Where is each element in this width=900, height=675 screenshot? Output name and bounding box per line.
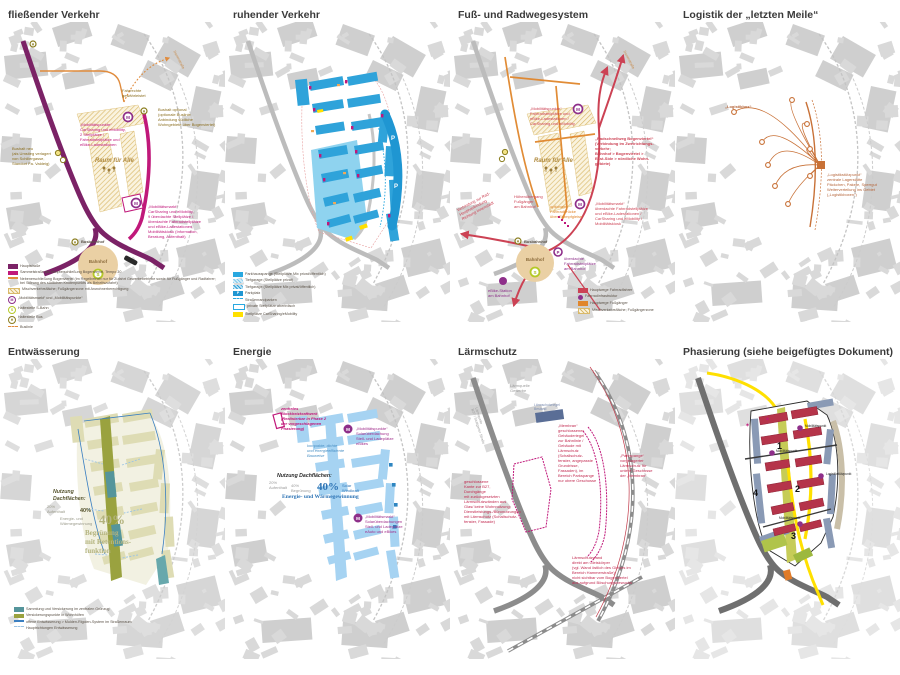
legend-item: Hauptwege Fahrradfahrer [578, 288, 672, 293]
text-energie-waerme: Energie- und Wärmegewinnung [282, 494, 392, 501]
legend-item: Straßenrandparken [233, 298, 445, 302]
panel-phasierung: Phasierung (siehe beigefügtes Dokument) [675, 337, 900, 674]
bus-stop-icon: H [30, 41, 36, 47]
legend-item: M „Mobilitätsmarkt“ und „Mobilitätspunkt… [8, 296, 220, 304]
busbahnhof-icon: H [515, 238, 521, 244]
mobilitaetspunkt-icon: M [344, 425, 353, 434]
annotation-raum-fuer-alle: Raum für Alle [534, 158, 584, 166]
annotation-mobilitaetspunkte: „Mobilitätspunkte“ CarSharing und eMobil… [80, 122, 128, 147]
legend-label: Sammelstraße als Haupterschließung Bogen… [20, 270, 121, 274]
annotation-mobilitaetsmarkt: „Mobilitätsmarkt“ überdachte Fahrradstel… [595, 201, 655, 226]
legend-label: Haltestelle S-Bahn [18, 306, 49, 310]
legend-swatch-icon [8, 277, 18, 279]
legend-swatch-icon [233, 298, 243, 299]
legend-label: Tiefgarage (Stellplätze privat) [245, 278, 293, 282]
legend: Sammlung und Versickerung im zentralen G… [14, 607, 214, 632]
legend-item: Tiefgarage (Stellplätze Mix privat/öffen… [233, 285, 445, 290]
map-canvas: ✶ ✶ 1 2 3 4 Mobilitätspunkt Mobilitätspu… [675, 359, 900, 659]
bus-stop-icon [60, 157, 65, 162]
legend-item: S Haltestelle S-Bahn [8, 306, 220, 314]
panel-title: ruhender Verkehr [225, 0, 450, 22]
legend-item: Mischverkehrsfläche; Fußgängerzone [578, 308, 672, 315]
legend-item: Nebenerschließung Bogenviertel (im Regel… [8, 277, 220, 286]
legend-swatch-icon [233, 304, 245, 311]
legend-item: H Haltestelle Bus [8, 315, 220, 323]
logistik-routes [734, 100, 820, 204]
map-laermschutz: Lärmquelle Gewerbe Lärmschutzriegel Best… [450, 359, 675, 659]
planning-sheet: fließender Verkehr Bahnhof S H [0, 0, 900, 675]
annotation-mobilitaetsmarkt: „Mobilitätsmarkt“ Solarüberdachungen Ste… [365, 514, 415, 534]
legend-item: Hauptrichtungen Entwässerung [14, 626, 214, 630]
map-entwaesserung: Nutzung Dachflächen: 20% Aufenthalt 40% … [0, 359, 225, 659]
text-40-begruenung: 40% Begrünung [291, 483, 317, 493]
panel-laermschutz: Lärmschutz Lärmquelle Ge [450, 337, 675, 674]
legend-label: Straßenrandparken [245, 298, 277, 302]
map-fuss-und-radwegesystem: Bahnhof S M M H [450, 22, 675, 322]
annotation-logistikstuetzpunkt: „Logistikstützpunkt“ zentrale Lagerstätt… [827, 172, 885, 197]
legend-label: offene Entwässerung > Mulden-Rigolen-Sys… [26, 620, 132, 624]
legend-swatch-icon [578, 288, 588, 293]
annotation-laermquelle-gewerbe: Lärmquelle Gewerbe [510, 383, 544, 393]
text-40-big: 40% [99, 512, 145, 528]
legend-swatch-icon [578, 295, 583, 300]
legend-label: Mischverkehrsfläche; Fußgängerzone mit A… [22, 287, 128, 291]
legend-swatch-icon [8, 264, 18, 269]
annotation-fahrradstellplaetze: überdachte Fahrradstellplätze am Bahnhof [564, 256, 608, 271]
legend-item: Hauptstraße [8, 264, 220, 269]
svg-text:P: P [557, 250, 560, 255]
legend-label: Buslinie [20, 325, 33, 329]
legend-label: Hauptrichtungen Entwässerung [26, 626, 77, 630]
legend-label: Tiefgarage (Stellplätze Mix privat/öffen… [245, 285, 316, 289]
svg-text:M: M [134, 201, 138, 206]
annotation-logistikbox: „Logistikbox“ [725, 104, 765, 109]
annotation-laermschutzriegel: Lärmschutzriegel Bestand [534, 403, 570, 412]
mobilitaetspunkt-icon: M [124, 113, 133, 122]
legend-label: Haltestelle Bus [18, 315, 43, 319]
legend-swatch-icon: H [8, 316, 16, 324]
annotation-ebike-station: eBike-Station am Bahnhof [488, 288, 526, 298]
annotation-raum-fuer-alle: Raum für Alle [95, 158, 145, 166]
legend-swatch-icon [233, 285, 243, 290]
annotation-fahrrechte: Fahrrechte gewährleistet [122, 88, 162, 98]
mobilitaetsmarkt-icon: M [354, 514, 363, 523]
legend-label: Parkhausspange (Stellplätze Mix privat/ö… [245, 272, 326, 276]
panel-title: fließender Verkehr [0, 0, 225, 22]
bus-stop-icon [502, 149, 507, 154]
poi-label: Mobilitätspunkt [805, 424, 826, 428]
text-nutzung-dachflaechen: Nutzung Dachflächen: [277, 473, 347, 480]
legend-label: Versickerungspunkte in Wohnhöfen [26, 613, 84, 617]
annotation-fahrradbruecke: optionale Fahrradbrücke über Stumpfgleis… [550, 204, 584, 219]
legend-label: Hauptstraße [20, 264, 40, 268]
poi-label: Mobilitätspunkt [776, 449, 797, 453]
annotation-kompakte-bauweise: kompakte, dichte und energieeffiziente B… [307, 443, 353, 458]
annotation-radschnellweg: „Radschnellweg Bogenviertel“ (Verbindung… [595, 136, 661, 166]
parkplatz-letter: P [394, 184, 398, 190]
panel-title: Lärmschutz [450, 337, 675, 359]
map-phasierung: ✶ ✶ 1 2 3 4 Mobilitätspunkt Mobilitätspu… [675, 359, 900, 659]
map-canvas: M M [225, 359, 450, 659]
legend-swatch-icon [8, 288, 20, 295]
annotation-geschlossene-kante: geschlossene Kante zur B27, Durchgänge m… [464, 479, 522, 524]
annotation-parkspange: „Parkspange“ vorgelagerter Lärmschutz fü… [620, 453, 658, 478]
text-40-small: 40% [80, 508, 96, 515]
legend-swatch-icon [233, 312, 243, 317]
panel-title: Phasierung (siehe beigefügtes Dokument) [675, 337, 900, 359]
legend-item: Fahrradinfrastruktur [578, 294, 672, 299]
legend-label: „Mobilitätsmarkt“ und „Mobilitätspunkte“ [18, 296, 83, 300]
bahnhof-label: Bahnhof [526, 257, 545, 262]
panel-grid: fließender Verkehr Bahnhof S H [0, 0, 900, 674]
legend-label: Parkplatz [245, 291, 260, 295]
text-energie-waerme: Energie- und Wärmegewinnung [60, 516, 98, 526]
parkplatz-letter: P [391, 136, 395, 142]
map-logistik: „Logistikbox“ „Logistikstützpunkt“ zentr… [675, 22, 900, 322]
legend-label: private Stellplätze oberirdisch [247, 304, 295, 308]
legend-swatch-icon [578, 308, 590, 315]
legend-swatch-icon [233, 272, 243, 277]
panel-title: Entwässerung [0, 337, 225, 359]
legend-item: offene Entwässerung > Mulden-Rigolen-Sys… [14, 620, 214, 624]
phase-number: 4 [753, 488, 758, 498]
legend-label: Sammlung und Versickerung im zentralen G… [26, 607, 109, 611]
legend-label: Nebenerschließung Bogenviertel (im Regel… [20, 277, 220, 286]
map-fliessender-verkehr: Bahnhof S H H M [0, 22, 225, 322]
phase-number: 3 [791, 531, 796, 541]
legend-item: Versickerungspunkte in Wohnhöfen [14, 613, 214, 618]
legend: Hauptstraße Sammelstraße als Haupterschl… [8, 264, 220, 331]
legend-item: Tiefgarage (Stellplätze privat) [233, 278, 445, 283]
legend-swatch-icon: S [8, 306, 16, 314]
poi-label: Logistikstützpunkt [826, 472, 851, 476]
legend-swatch-icon [14, 626, 24, 627]
legend-item: Mischverkehrsfläche; Fußgängerzone mit A… [8, 287, 220, 294]
legend-label: Hauptwege Fahrradfahrer [590, 288, 632, 292]
annotation-mobilitaetspunkte: „Mobilitätspunkte“ Solarüberdachung Stel… [356, 426, 406, 446]
legend-swatch-icon [8, 326, 18, 327]
logistikbox-icons [732, 98, 813, 207]
panel-entwaesserung: Entwässerung [0, 337, 225, 674]
star-icon: ✶ [745, 422, 750, 429]
legend-label: Stellplätze CarSharing/eMobility [245, 312, 297, 316]
annotation-mobilitaetspunkte: „Mobilitätspunkte“ Fahrradstellplätze un… [530, 106, 580, 126]
annotation-busbahnhof: Busbahnhof [81, 239, 115, 244]
bus-stop-icon: H [141, 108, 147, 114]
legend-swatch-icon: M [8, 296, 16, 304]
panel-ruhender-verkehr: ruhender Verkehr P P [225, 0, 450, 337]
legend-swatch-icon [14, 607, 24, 612]
star-icon: ✶ [765, 416, 770, 423]
annotation-bushalt-neu: Bushalt neu (als Umstieg verlagert von S… [12, 146, 58, 166]
mobilitaetsmarkt-icon: M [132, 199, 141, 208]
panel-title: Fuß- und Radwegesystem [450, 0, 675, 22]
legend-item: Buslinie [8, 325, 220, 329]
panel-title: Logistik der „letzten Meile“ [675, 0, 900, 22]
map-canvas: Bahnhof S M M H [450, 22, 675, 322]
panel-fuss-und-radwegesystem: Fuß- und Radwegesystem [450, 0, 675, 337]
text-solar-windkraft: Solar Windkraft [342, 483, 368, 493]
panel-logistik-letzte-meile: Logistik der „letzten Meile“ [675, 0, 900, 337]
fahrradparken-icon: P [554, 248, 562, 256]
annotation-hoehenuebergang: Höhenübergang Fußgänger am Bahnhof [514, 194, 550, 209]
sbahn-stop-icon: S [531, 268, 540, 277]
logistikstuetzpunkt-icon [817, 161, 825, 169]
bus-stop-icon [499, 156, 504, 161]
svg-text:M: M [356, 516, 360, 521]
legend-item: Hauptwege Fußgänger [578, 301, 672, 306]
text-20-aufenthalt: 20% Aufenthalt [47, 504, 77, 514]
legend-item: P Parkplatz [233, 291, 445, 296]
legend-label: Mischverkehrsfläche; Fußgängerzone [592, 308, 654, 312]
legend-item: Sammelstraße als Haupterschließung Bogen… [8, 270, 220, 275]
annotation-bhkw: zentrales Blockheizkraftwerk (Realisierb… [281, 406, 329, 431]
panel-energie: Energie M M zentrales [225, 337, 450, 674]
orange-building [783, 569, 792, 580]
panel-fliessender-verkehr: fließender Verkehr Bahnhof S H [0, 0, 225, 337]
poi-label: Mobilitätsmarkt [779, 516, 801, 520]
ebike-station-icon [499, 277, 507, 285]
legend: Hauptwege Fahrradfahrer Fahrradinfrastru… [578, 288, 672, 316]
annotation-laermschutzwand: Lärmschutzwand direkt am Gleiskörper (vg… [572, 555, 648, 585]
map-ruhender-verkehr: P P [225, 22, 450, 322]
legend-swatch-icon [578, 301, 588, 306]
legend-label: Hauptwege Fußgänger [590, 301, 628, 305]
annotation-membran: „Membran“ geschlossener Gebäuderiegel zu… [558, 423, 600, 483]
annotation-busbahnhof: Busbahnhof [524, 239, 558, 244]
legend-item: private Stellplätze oberirdisch [233, 304, 445, 311]
legend-swatch-icon: P [233, 291, 243, 296]
busbahnhof-icon: H [72, 239, 78, 245]
annotation-bushalt-optional: Bushalt optional (optionale Buslinie Anb… [158, 107, 216, 127]
text-nutzung-dachflaechen: Nutzung Dachflächen: [53, 489, 93, 502]
svg-text:M: M [346, 427, 350, 432]
legend-label: Fahrradinfrastruktur [585, 294, 617, 298]
legend-swatch-icon [14, 620, 24, 622]
legend-swatch-icon [14, 614, 24, 619]
annotation-mobilitaetsmarkt: „Mobilitätsmarkt“ CarSharing und eMobili… [148, 204, 210, 239]
text-begruenung: Begrünung mit Retentions- funktion [85, 529, 149, 555]
legend-swatch-icon [233, 279, 243, 284]
map-energie: M M zentrales Blockheizkraftwerk (Realis… [225, 359, 450, 659]
phase-number: 2 [795, 484, 800, 494]
legend-swatch-icon [8, 271, 18, 276]
legend-item: Parkhausspange (Stellplätze Mix privat/ö… [233, 272, 445, 277]
legend-item: Sammlung und Versickerung im zentralen G… [14, 607, 214, 612]
svg-text:S: S [533, 270, 536, 275]
panel-title: Energie [225, 337, 450, 359]
svg-text:M: M [126, 115, 130, 120]
legend-item: Stellplätze CarSharing/eMobility [233, 312, 445, 317]
legend: Parkhausspange (Stellplätze Mix privat/ö… [233, 272, 445, 318]
